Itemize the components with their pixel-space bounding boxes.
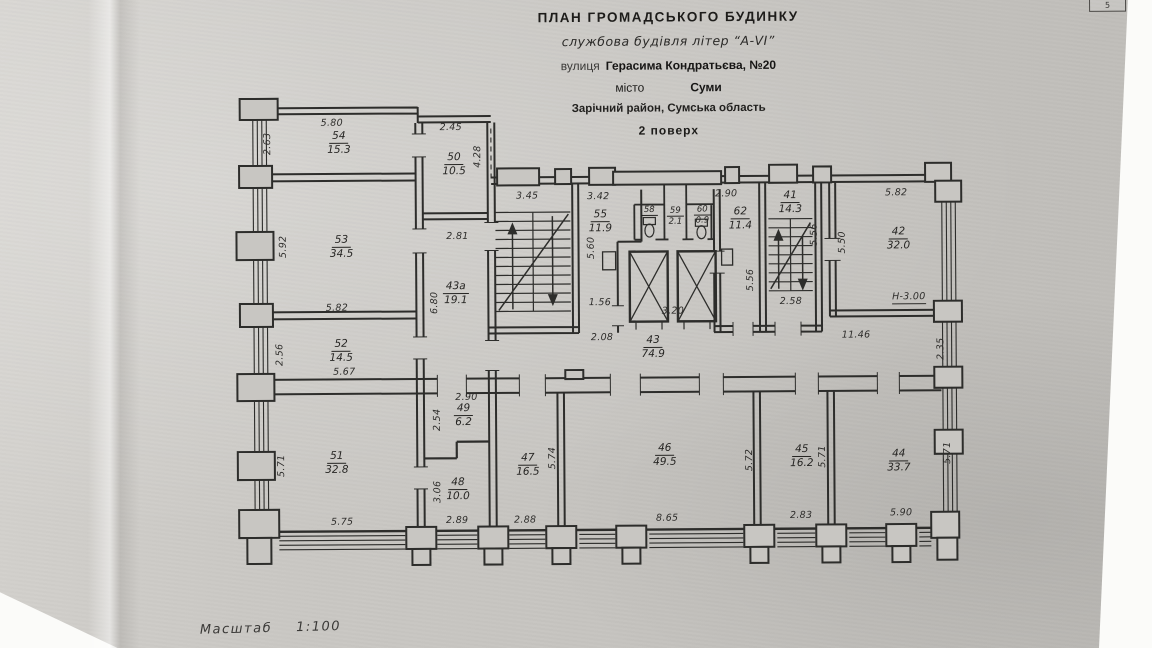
dimension-label: 5.80 <box>321 119 343 129</box>
dimension-label: 5.71 <box>277 455 287 477</box>
room-area: 19.1 <box>444 294 467 307</box>
dimension-label: 2.89 <box>446 516 468 526</box>
room-label-52: 5214.5 <box>329 338 353 365</box>
room-label-49: 496.2 <box>454 402 474 429</box>
street-line: вулицяГерасима Кондратьєва, №20 <box>518 58 818 74</box>
room-number: 44 <box>889 447 908 461</box>
room-area: 34.5 <box>330 248 353 261</box>
room-number: 43 <box>643 334 662 348</box>
scan-content: 5415.3 5010.5 5334.5 43а19.1 5214.5 496.… <box>0 0 1152 648</box>
room-area: 14.3 <box>779 203 802 216</box>
dimension-label: 2.45 <box>440 123 462 133</box>
dimension-label: 8.65 <box>656 514 678 524</box>
dimension-label: 5.74 <box>548 447 558 469</box>
district-line: Зарічний район, Сумська область <box>519 102 819 116</box>
title-block: ПЛАН ГРОМАДСЬКОГО БУДИНКУ службова будів… <box>518 9 819 139</box>
room-number: 42 <box>889 225 908 239</box>
room-label-58: 58 <box>641 205 658 216</box>
dimension-label: 2.88 <box>514 515 536 525</box>
dimension-label: 5.90 <box>890 508 912 518</box>
room-number: 50 <box>444 151 463 165</box>
room-area: 10.0 <box>446 490 469 503</box>
room-label-42: 4232.0 <box>887 225 911 252</box>
room-area: 33.7 <box>887 461 910 474</box>
plan-subtitle: службова будівля літер “А-VI” <box>518 33 818 50</box>
dimension-label: 2.81 <box>446 232 468 242</box>
dimension-label: 5.82 <box>326 304 348 314</box>
dimension-label: 4.28 <box>473 145 483 167</box>
dimension-label: 5.60 <box>587 237 597 259</box>
dimension-label: 5.75 <box>331 518 353 528</box>
room-number: 60 <box>694 204 711 215</box>
room-area: 14.5 <box>329 352 352 365</box>
dimension-label: 5.50 <box>838 231 848 253</box>
room-label-51: 5132.8 <box>325 450 349 477</box>
dimension-label: 2.54 <box>433 409 443 431</box>
dimension-label: 2.08 <box>591 333 613 343</box>
room-number: 41 <box>780 189 799 203</box>
room-label-43-corridor: 4374.9 <box>641 334 665 361</box>
room-label-55: 5511.9 <box>589 208 613 235</box>
room-label-59: 592.1 <box>667 206 684 227</box>
room-number: 55 <box>591 208 610 222</box>
room-label-43a: 43а19.1 <box>443 280 469 307</box>
scale-note: Масштаб 1:100 <box>200 620 342 637</box>
street-label: вулиця <box>561 59 600 73</box>
room-label-50: 5010.5 <box>442 151 466 178</box>
room-number: 51 <box>327 450 346 464</box>
dimension-label: 5.67 <box>333 368 355 378</box>
dimension-label: 5.82 <box>885 188 907 198</box>
page-number: 5 <box>1105 0 1110 9</box>
dimension-label: 11.46 <box>842 330 871 340</box>
room-number: 54 <box>329 130 348 144</box>
room-number: 52 <box>331 338 350 352</box>
room-area: 0.9 <box>696 216 710 226</box>
room-number: 47 <box>518 452 537 466</box>
room-label-47: 4716.5 <box>516 452 540 479</box>
room-area: 10.5 <box>442 165 465 178</box>
room-number: 58 <box>641 205 658 216</box>
dimension-label: 2.35 <box>936 338 946 360</box>
room-label-41: 4114.3 <box>778 189 802 216</box>
room-label-45: 4516.2 <box>790 443 814 470</box>
scale-label: Масштаб <box>200 622 273 637</box>
plan-title: ПЛАН ГРОМАДСЬКОГО БУДИНКУ <box>518 9 818 26</box>
dimension-label: 5.56 <box>746 269 756 291</box>
dimension-label: 2.90 <box>455 393 477 403</box>
room-label-53: 5334.5 <box>330 234 354 261</box>
room-area: 74.9 <box>641 348 664 361</box>
dimension-label: 2.63 <box>263 133 273 155</box>
city-line: містоСуми <box>519 80 819 96</box>
room-area: 16.5 <box>516 466 539 479</box>
room-label-54: 5415.3 <box>327 130 351 157</box>
dimension-label: 5.56 <box>810 223 820 245</box>
room-area: 15.3 <box>327 144 350 157</box>
room-number: 43а <box>443 280 469 294</box>
room-number: 62 <box>731 205 750 219</box>
dimension-label: 2.58 <box>780 297 802 307</box>
street-value: Герасима Кондратьєва, №20 <box>606 58 776 73</box>
room-label-44: 4433.7 <box>887 447 911 474</box>
room-label-60: 600.9 <box>694 204 711 225</box>
dimension-label: 1.56 <box>589 298 611 308</box>
dimension-label: 5.71 <box>943 442 953 464</box>
room-area: 11.9 <box>589 222 612 235</box>
dimension-label: 3.20 <box>662 307 684 317</box>
dimension-label: 3.42 <box>587 192 609 202</box>
dimension-label: 2.90 <box>715 189 737 199</box>
dimension-label: 3.06 <box>433 481 443 503</box>
dimension-label: 2.83 <box>790 511 812 521</box>
room-area: 32.0 <box>887 239 910 252</box>
room-number: 53 <box>332 234 351 248</box>
room-area: 2.1 <box>669 217 683 227</box>
scanned-floor-plan-photo: 5415.3 5010.5 5334.5 43а19.1 5214.5 496.… <box>0 0 1152 648</box>
dimension-label: 6.80 <box>430 292 440 314</box>
dimension-label: 3.45 <box>516 191 538 201</box>
room-label-62: 6211.4 <box>729 205 753 232</box>
room-area: 6.2 <box>455 416 472 429</box>
room-number: 59 <box>667 206 684 217</box>
city-label: місто <box>615 81 644 95</box>
page-number-box: 5 <box>1089 0 1126 12</box>
room-number: 48 <box>448 476 467 490</box>
room-label-48: 4810.0 <box>446 476 470 503</box>
floor-line: 2 поверх <box>519 123 819 139</box>
room-number: 46 <box>655 442 674 456</box>
scale-value: 1:100 <box>296 620 341 634</box>
room-area: 11.4 <box>729 219 752 232</box>
dimension-label: 5.71 <box>818 445 828 467</box>
dimension-label: 5.72 <box>745 449 755 471</box>
dimension-label: 5.92 <box>279 236 289 258</box>
city-value: Суми <box>690 80 722 94</box>
dimension-label: 2.56 <box>275 344 285 366</box>
room-area: 16.2 <box>790 457 813 470</box>
room-area: 32.8 <box>325 464 348 477</box>
room-area: 49.5 <box>653 456 676 469</box>
room-number: 49 <box>454 402 473 416</box>
room-number: 45 <box>792 443 811 457</box>
room-label-46: 4649.5 <box>653 442 677 469</box>
height-note: Н-3.00 <box>892 292 926 304</box>
